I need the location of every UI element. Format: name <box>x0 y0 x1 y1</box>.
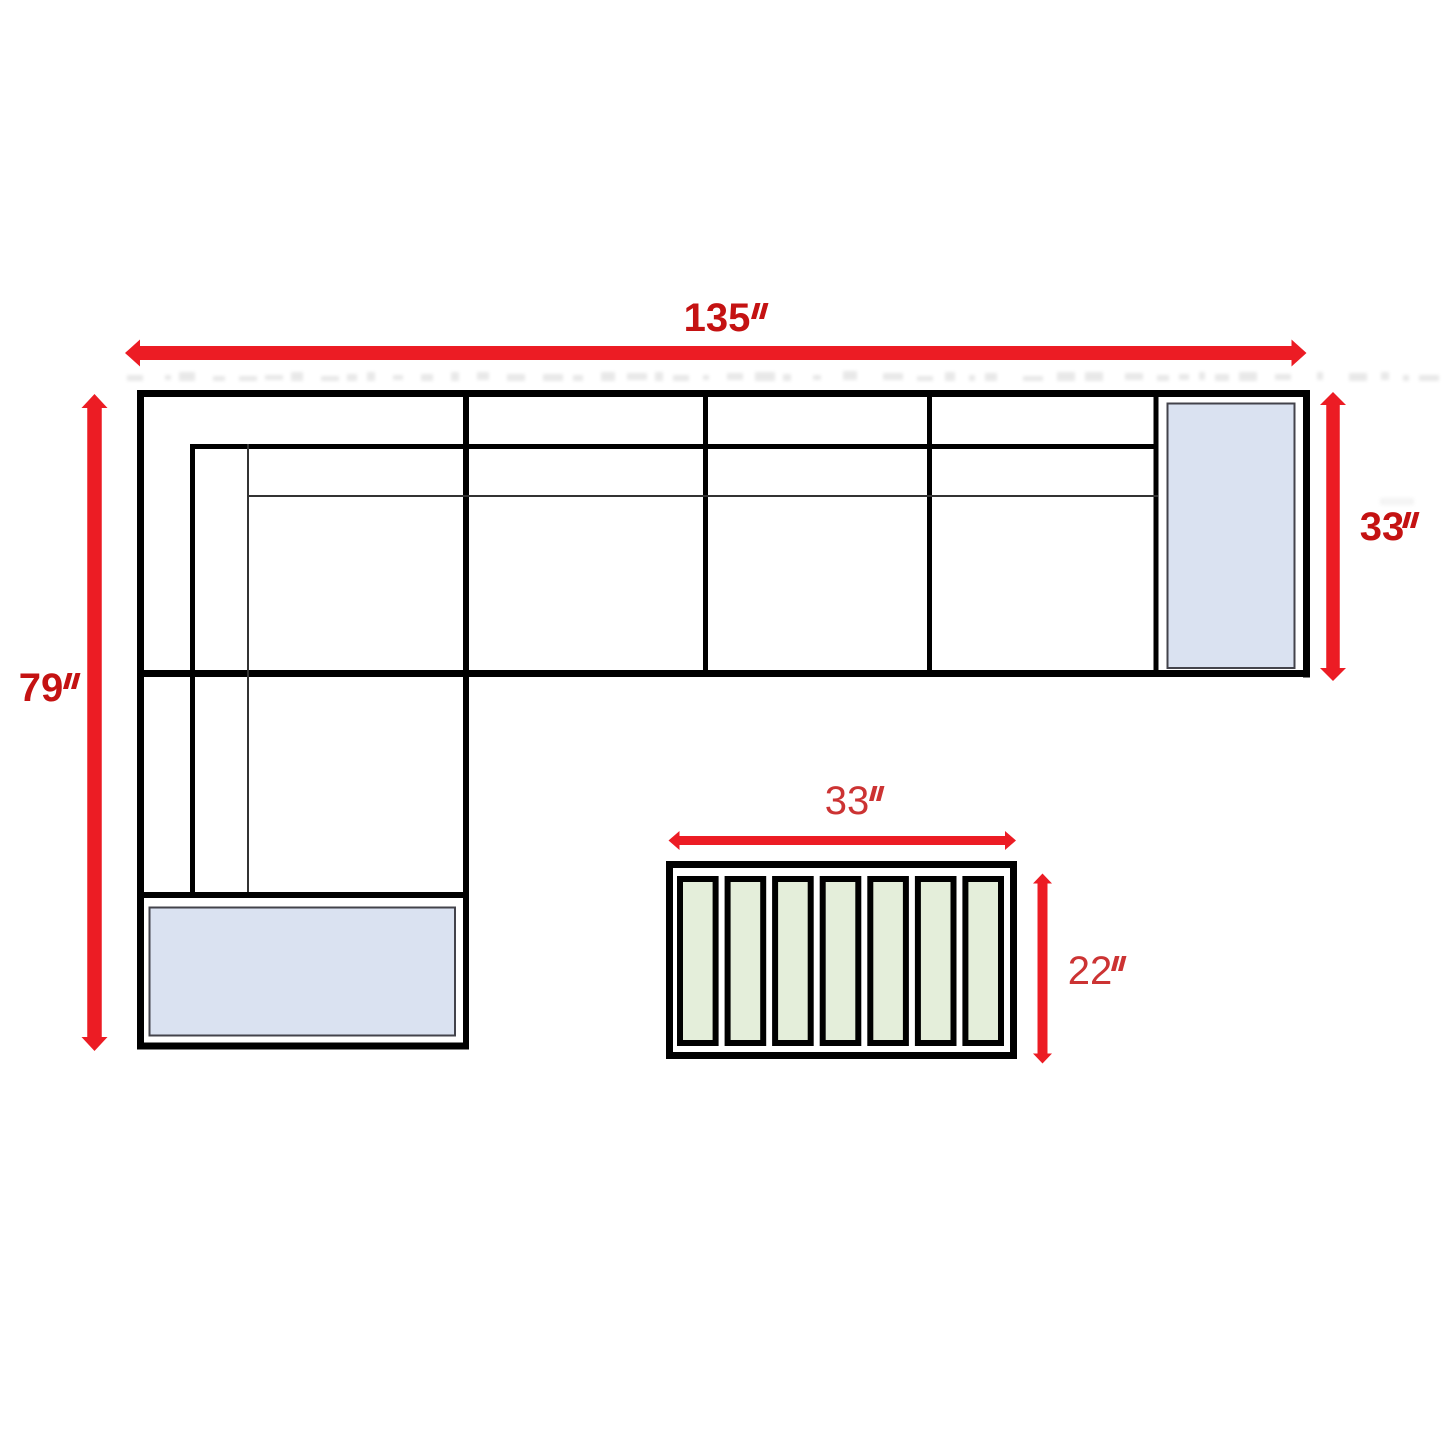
svg-text:22: 22 <box>1068 949 1113 993</box>
svg-text:33: 33 <box>1360 505 1405 549</box>
svg-text:79: 79 <box>19 666 64 710</box>
svg-text:135: 135 <box>684 296 751 340</box>
svg-text:33: 33 <box>825 779 870 823</box>
